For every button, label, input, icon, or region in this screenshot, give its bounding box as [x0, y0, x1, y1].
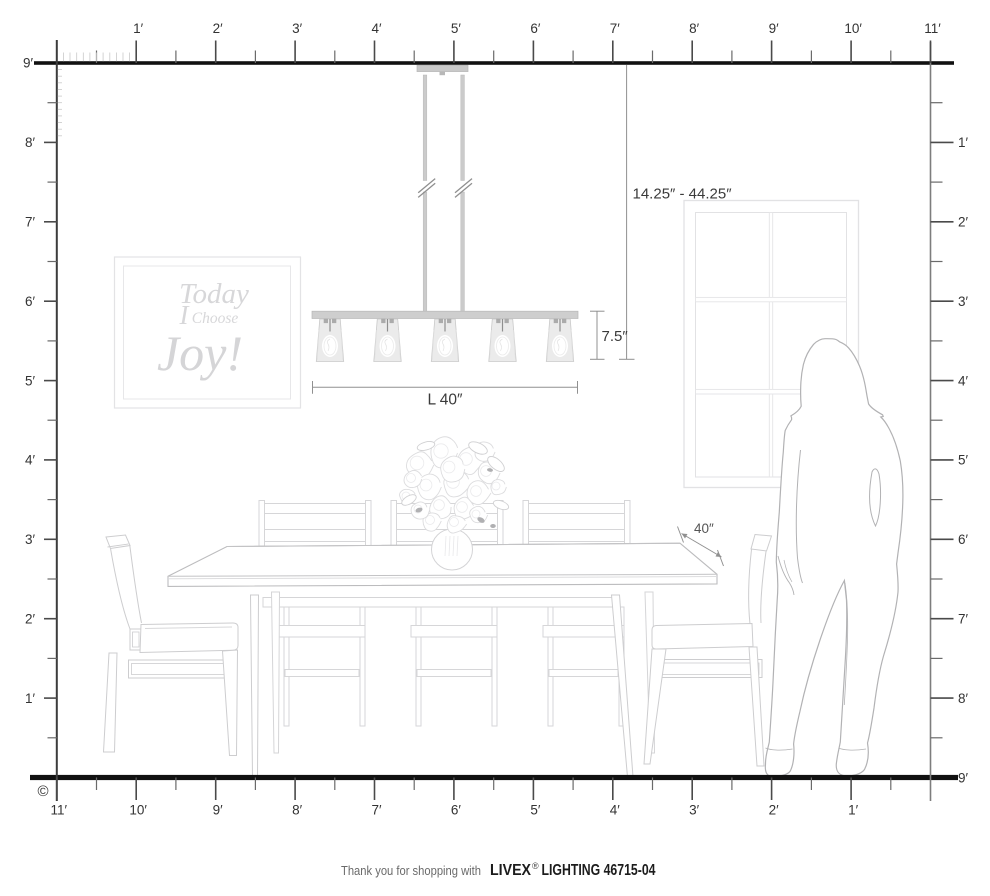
svg-text:©: © [37, 783, 48, 800]
svg-text:1′: 1′ [958, 135, 969, 150]
svg-text:8′: 8′ [958, 691, 969, 706]
svg-text:LIVEX: LIVEX [490, 862, 532, 879]
svg-text:7′: 7′ [371, 803, 382, 818]
svg-text:8′: 8′ [689, 21, 700, 36]
svg-text:8′: 8′ [292, 803, 303, 818]
svg-text:40″: 40″ [694, 521, 714, 536]
svg-text:4′: 4′ [958, 373, 969, 388]
svg-text:4′: 4′ [610, 803, 621, 818]
svg-text:1′: 1′ [25, 691, 36, 706]
svg-text:6′: 6′ [451, 803, 462, 818]
svg-text:2′: 2′ [213, 21, 224, 36]
svg-text:7′: 7′ [958, 612, 969, 627]
svg-text:2′: 2′ [769, 803, 780, 818]
svg-text:®: ® [532, 861, 539, 871]
svg-text:LIGHTING 46715-04: LIGHTING 46715-04 [542, 862, 656, 879]
svg-text:1′: 1′ [133, 21, 144, 36]
svg-text:4′: 4′ [25, 453, 36, 468]
svg-text:L 40″: L 40″ [427, 392, 463, 409]
svg-text:7′: 7′ [610, 21, 621, 36]
svg-text:Thank you for shopping with: Thank you for shopping with [341, 863, 481, 878]
svg-text:6′: 6′ [25, 294, 36, 309]
svg-text:5′: 5′ [451, 21, 462, 36]
svg-text:6′: 6′ [958, 532, 969, 547]
svg-text:6′: 6′ [530, 21, 541, 36]
svg-text:Today: Today [179, 278, 249, 310]
svg-text:3′: 3′ [292, 21, 303, 36]
svg-text:2′: 2′ [958, 215, 969, 230]
svg-text:5′: 5′ [530, 803, 541, 818]
svg-text:3′: 3′ [25, 532, 36, 547]
svg-text:3′: 3′ [958, 294, 969, 309]
svg-text:9′: 9′ [23, 56, 34, 71]
svg-text:5′: 5′ [25, 373, 36, 388]
svg-text:Joy!: Joy! [157, 325, 243, 381]
svg-text:5′: 5′ [958, 453, 969, 468]
svg-text:7′: 7′ [25, 215, 36, 230]
svg-text:10′: 10′ [129, 803, 147, 818]
svg-text:9′: 9′ [213, 803, 224, 818]
svg-text:3′: 3′ [689, 803, 700, 818]
svg-text:10′: 10′ [844, 21, 862, 36]
svg-text:11′: 11′ [924, 21, 941, 36]
svg-text:1′: 1′ [848, 803, 859, 818]
svg-text:9′: 9′ [769, 21, 780, 36]
svg-text:7.5″: 7.5″ [602, 328, 629, 345]
svg-text:9′: 9′ [958, 770, 969, 785]
svg-text:8′: 8′ [25, 135, 36, 150]
svg-text:4′: 4′ [371, 21, 382, 36]
svg-text:14.25″ - 44.25″: 14.25″ - 44.25″ [633, 186, 733, 203]
svg-text:2′: 2′ [25, 612, 36, 627]
svg-text:11′: 11′ [51, 803, 68, 818]
